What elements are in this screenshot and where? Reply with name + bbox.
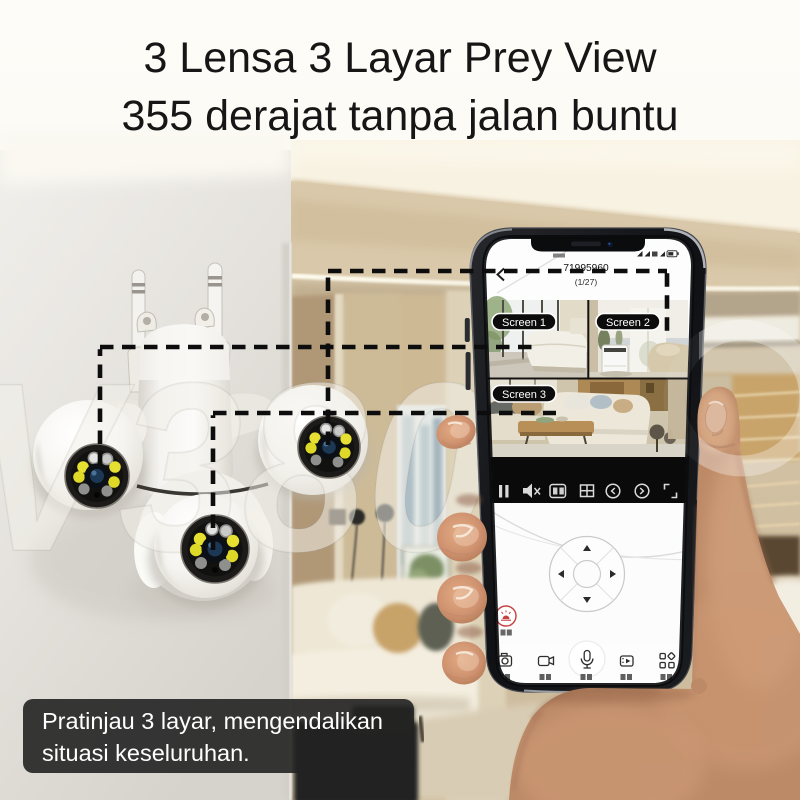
svg-text:Pratinjau 3 layar, mengendalik: Pratinjau 3 layar, mengendalikan <box>42 708 383 734</box>
svg-text:Screen 2: Screen 2 <box>606 317 650 329</box>
svg-text:(1/27): (1/27) <box>575 277 598 287</box>
svg-text:situasi keseluruhan.: situasi keseluruhan. <box>42 740 250 766</box>
svg-text:Screen 3: Screen 3 <box>502 389 546 401</box>
svg-text:3 Lensa 3 Layar Prey View: 3 Lensa 3 Layar Prey View <box>143 34 657 82</box>
svg-text:355 derajat tanpa jalan buntu: 355 derajat tanpa jalan buntu <box>121 92 678 140</box>
svg-text:Screen 1: Screen 1 <box>502 317 546 329</box>
